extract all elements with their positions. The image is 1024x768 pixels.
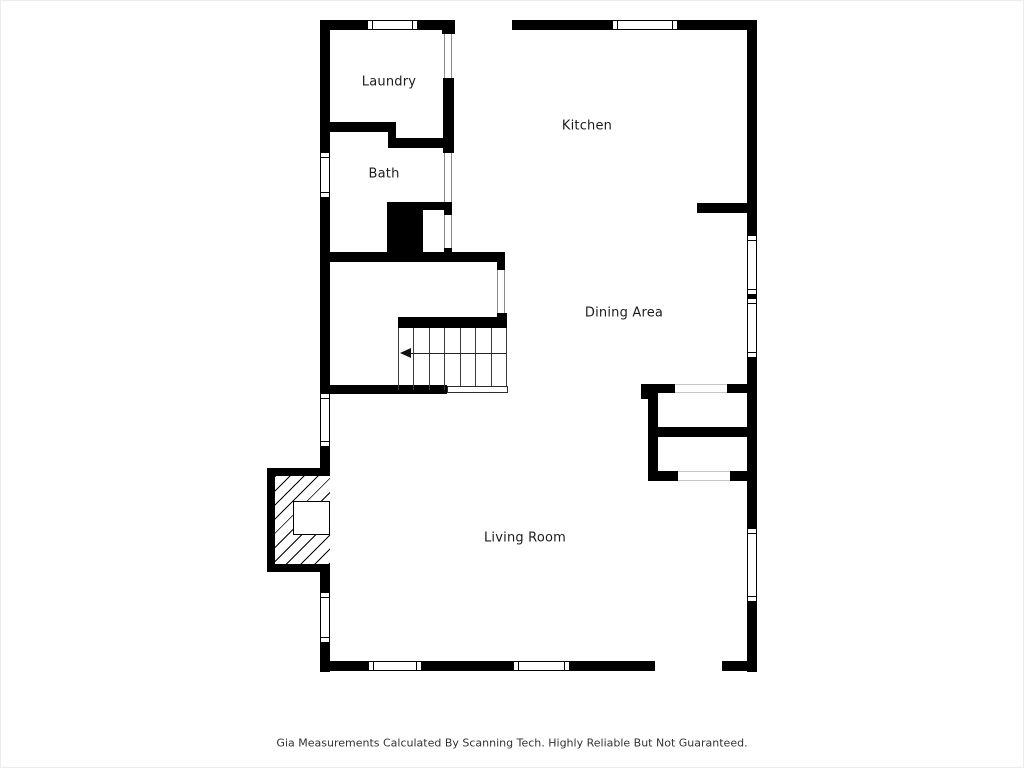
stair-tread-line (444, 328, 445, 390)
closet-mid-wall (648, 427, 747, 437)
closet-bottom-right (730, 471, 747, 481)
stair-tread-line (491, 328, 492, 390)
window-left-living-2-pane-line (321, 637, 329, 638)
laundry-kitchen-wall (443, 78, 454, 153)
window-bottom-living-2-pane-line (518, 662, 519, 670)
stair-tread-line (475, 328, 476, 390)
opening-closet-bottom (678, 471, 730, 481)
exterior-bottom-right (722, 661, 757, 671)
opening-laundry-door (444, 34, 452, 78)
window-left-living-2-pane-line (321, 597, 329, 598)
window-bottom-living-1-pane-line (373, 662, 374, 670)
window-top-kitchen-pane-line (617, 21, 618, 29)
window-left-living-1 (320, 393, 330, 447)
closet-top-wall-right (727, 384, 747, 393)
window-top-laundry-pane-line (372, 21, 373, 29)
stair-tread-line (429, 328, 430, 390)
living-inner-wall (320, 385, 447, 394)
stair-tread-line (460, 328, 461, 390)
floorplan-page: Laundry Kitchen Bath Dining Area Living … (0, 0, 1024, 768)
room-label-kitchen: Kitchen (562, 119, 612, 134)
exterior-left (320, 20, 330, 672)
stair-opening-box (447, 386, 508, 393)
bath-top-wall (390, 138, 443, 148)
stair-top-wall (398, 317, 507, 328)
opening-closet-top (675, 384, 727, 393)
stair-direction-arrow (400, 348, 411, 358)
window-right-dining-1 (747, 235, 757, 295)
disclaimer-text: Gia Measurements Calculated By Scanning … (276, 737, 747, 750)
window-right-dining-2-pane-line (748, 303, 756, 304)
opening-nook (444, 215, 452, 248)
room-label-dining-area: Dining Area (585, 306, 663, 321)
opening-bath-kitchen (444, 153, 452, 202)
opening-hall-dining (497, 270, 505, 313)
window-right-dining-1-pane-line (748, 289, 756, 290)
window-right-living-pane-line (748, 533, 756, 534)
window-right-dining-1-pane-line (748, 240, 756, 241)
window-top-kitchen (612, 20, 678, 30)
fireplace-firebox (293, 501, 330, 535)
window-right-living (747, 528, 757, 602)
laundry-bottom-wall (320, 122, 390, 132)
closet-bottom-left (648, 471, 678, 481)
window-bottom-living-2-pane-line (564, 662, 565, 670)
closet-top-wall-left (641, 384, 675, 393)
window-left-living-1-pane-line (321, 441, 329, 442)
stair-tread-line (398, 328, 399, 390)
room-label-bath: Bath (368, 167, 399, 182)
stair-direction-line (403, 353, 506, 354)
window-bottom-living-1-pane-line (416, 662, 417, 670)
window-right-living-pane-line (748, 596, 756, 597)
kitchen-dining-stub (697, 203, 747, 213)
room-label-laundry: Laundry (362, 75, 416, 90)
hall-step-block (497, 252, 505, 270)
window-top-laundry (367, 20, 418, 30)
stair-tread-line (506, 328, 507, 390)
window-right-dining-2-pane-line (748, 352, 756, 353)
window-bottom-living-2 (513, 661, 570, 671)
window-left-bath-pane-line (321, 192, 329, 193)
window-right-dining-2 (747, 298, 757, 358)
stair-tread-line (413, 328, 414, 390)
window-left-bath (320, 152, 330, 198)
room-label-living-room: Living Room (484, 531, 566, 546)
nook-jamb-top (444, 202, 452, 215)
window-top-kitchen-pane-line (672, 21, 673, 29)
window-left-living-2 (320, 592, 330, 643)
window-top-laundry-pane-line (412, 21, 413, 29)
laundry-door-block (442, 20, 455, 34)
window-bottom-living-1 (368, 661, 422, 671)
window-left-living-1-pane-line (321, 398, 329, 399)
window-left-bath-pane-line (321, 157, 329, 158)
bath-bottom-wall (320, 252, 505, 262)
